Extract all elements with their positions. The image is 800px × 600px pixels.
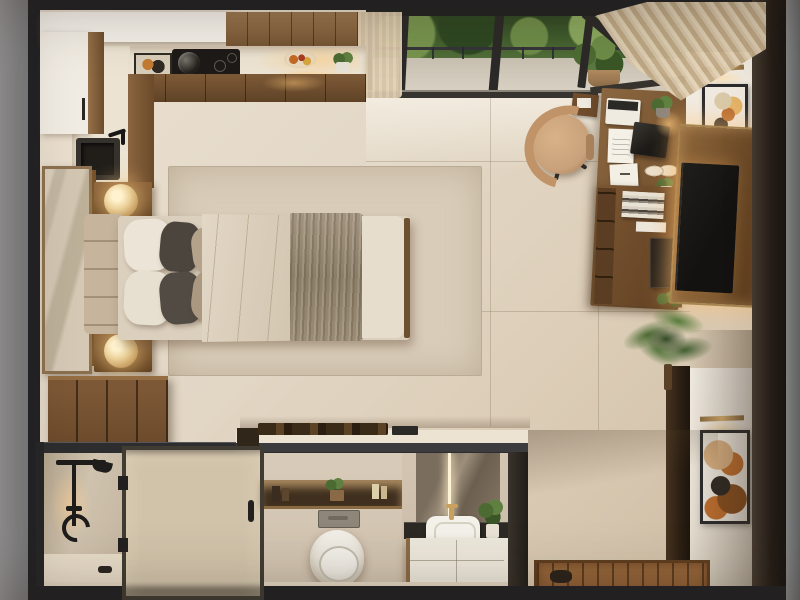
burner-ring [227,53,237,63]
office-chair [518,106,610,198]
desk-plant-pot [656,108,670,118]
table-lamp [104,184,138,218]
wall-shadow [688,330,756,592]
bed-headboard [84,214,122,334]
shower-drain [98,566,112,573]
vanity-drawers [406,538,516,584]
white-books [636,221,666,232]
cabinet-handle [82,98,85,120]
drawer-seam [410,560,504,561]
drawer-seam [456,540,457,582]
book-stack [621,191,664,219]
glass-hinge [118,476,128,490]
bathroom-frame-right [508,442,528,592]
throw-blanket [290,213,364,341]
tall-white-cabinet [40,32,88,134]
toiletry-bottle [282,488,289,501]
frosted-glass-partition [122,446,264,600]
outer-margin-right [786,0,800,600]
bed-foot [362,216,404,338]
peninsula-edge [236,443,528,452]
toilet-seat [319,546,359,582]
dark-tray [392,426,418,435]
niche-plant-pot [330,490,344,501]
slippers [550,570,572,583]
floor-tile-seam [490,96,491,426]
burner-ring [214,60,226,72]
bed-frame-edge [404,218,410,338]
shower-valve [66,506,82,511]
toiletry-bottle [381,486,387,499]
peninsula-end-block [237,428,259,446]
plant-frond [646,326,686,352]
vanity-vase [486,524,499,538]
dresser [48,376,168,446]
floor-tile-seam [598,300,599,430]
flush-button [328,516,348,520]
cabinet-wood-side [88,32,104,134]
glass-handle [248,500,254,522]
notepad-mark [620,173,630,175]
outer-margin-left [0,0,28,600]
fruit-bowl [284,51,316,68]
glass-hinge [118,538,128,552]
sink-faucet [121,131,125,145]
wood-boards [258,423,388,435]
outer-wall-right [752,0,788,600]
cooking-pot [178,52,200,74]
tv-screen [675,163,740,294]
kitchen-lower-cabinets [126,74,366,102]
counter-inner-face [128,74,154,188]
vanity-faucet [449,504,454,520]
toiletry-bottle [272,486,280,501]
chair-armrest [586,134,594,160]
bathroom-frame-left [36,442,44,592]
apartment-top-view-render [0,0,800,600]
toiletry-bottle [372,484,379,499]
chair-backrest [509,90,624,204]
bed-duvet [202,214,296,342]
cabinet-light-glow [262,74,326,92]
